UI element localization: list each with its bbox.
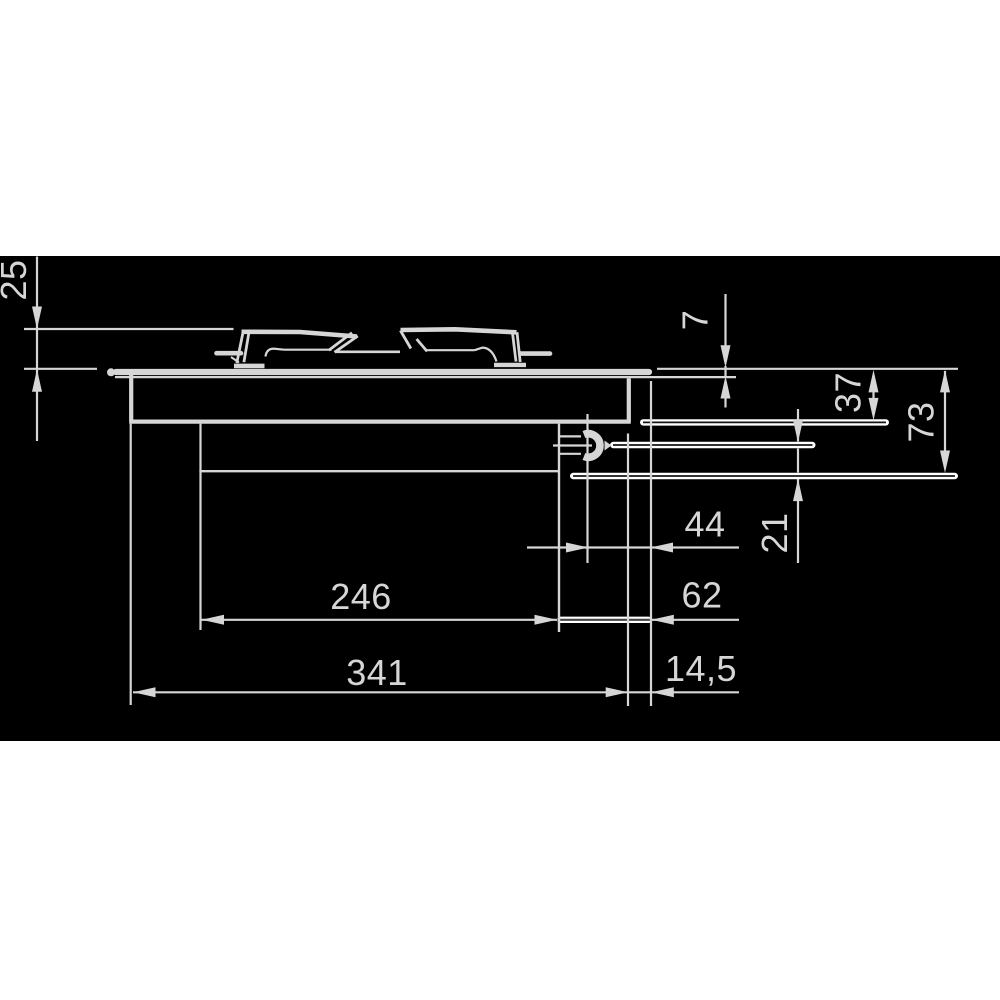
svg-text:341: 341 xyxy=(346,652,408,693)
svg-text:44: 44 xyxy=(684,504,725,545)
svg-text:14,5: 14,5 xyxy=(665,648,737,689)
svg-text:73: 73 xyxy=(901,401,942,442)
svg-text:62: 62 xyxy=(681,575,722,616)
svg-text:7: 7 xyxy=(675,310,716,331)
svg-text:37: 37 xyxy=(828,372,869,413)
svg-text:25: 25 xyxy=(0,259,34,300)
svg-text:21: 21 xyxy=(754,512,795,553)
svg-text:246: 246 xyxy=(330,576,392,617)
